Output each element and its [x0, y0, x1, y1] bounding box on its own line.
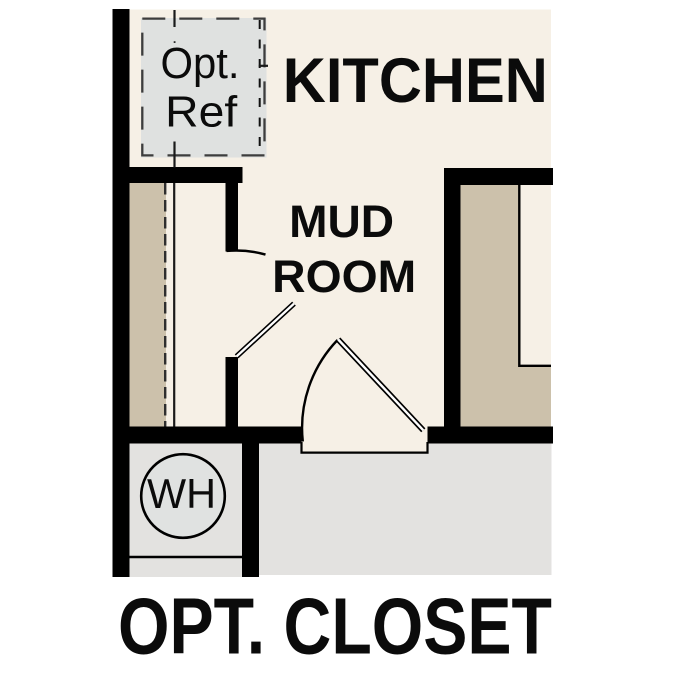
svg-text:KITCHEN: KITCHEN — [283, 46, 548, 116]
svg-text:ROOM: ROOM — [272, 251, 416, 302]
svg-text:Opt.: Opt. — [161, 40, 240, 88]
svg-text:WH: WH — [147, 470, 216, 517]
svg-text:MUD: MUD — [289, 196, 394, 247]
svg-text:OPT. CLOSET: OPT. CLOSET — [118, 581, 552, 670]
svg-text:Ref: Ref — [165, 89, 238, 137]
